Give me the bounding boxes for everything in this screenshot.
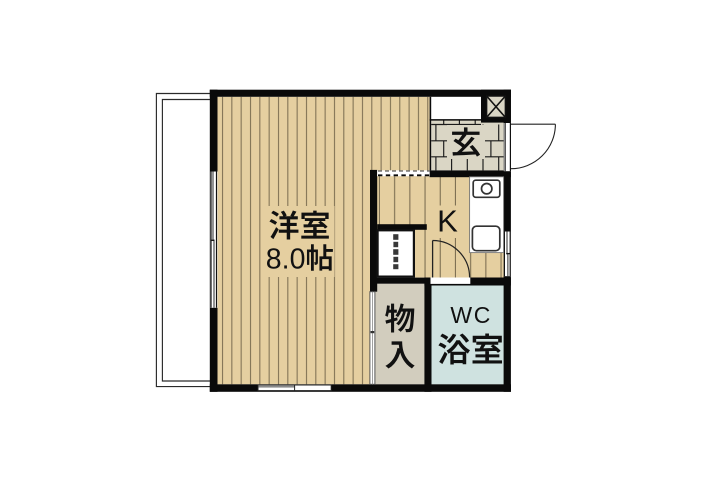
svg-text:WC: WC bbox=[450, 302, 492, 328]
svg-text:8.0: 8.0 bbox=[266, 243, 306, 275]
svg-text:K: K bbox=[437, 204, 458, 239]
